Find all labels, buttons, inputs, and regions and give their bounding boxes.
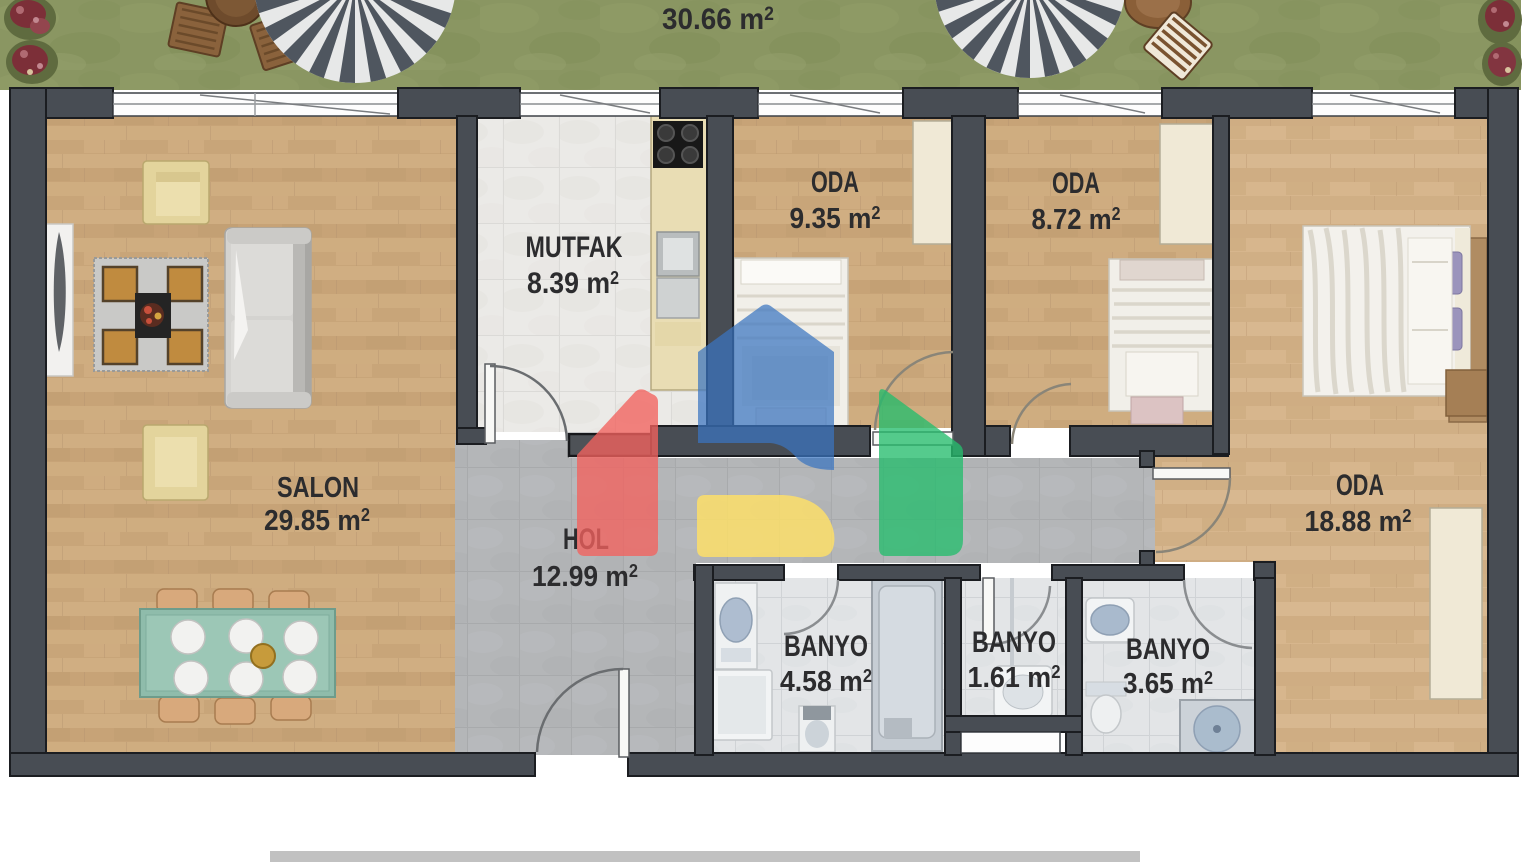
svg-text:BANYO: BANYO xyxy=(784,630,868,663)
svg-text:29.85 m2: 29.85 m2 xyxy=(264,505,370,537)
svg-text:MUTFAK: MUTFAK xyxy=(526,231,623,264)
svg-text:9.35 m2: 9.35 m2 xyxy=(790,203,881,235)
svg-text:3.65 m2: 3.65 m2 xyxy=(1123,668,1213,700)
svg-text:8.39 m2: 8.39 m2 xyxy=(527,267,619,300)
svg-text:4.58 m2: 4.58 m2 xyxy=(780,666,872,698)
svg-text:BANYO: BANYO xyxy=(972,626,1056,659)
svg-text:18.88 m2: 18.88 m2 xyxy=(1305,506,1412,538)
svg-text:ODA: ODA xyxy=(811,166,859,199)
svg-text:ODA: ODA xyxy=(1336,469,1384,502)
svg-text:SALON: SALON xyxy=(277,472,359,504)
svg-text:30.66 m2: 30.66 m2 xyxy=(662,3,774,36)
svg-text:1.61 m2: 1.61 m2 xyxy=(968,662,1061,694)
svg-text:ODA: ODA xyxy=(1052,167,1100,200)
svg-text:8.72 m2: 8.72 m2 xyxy=(1032,204,1121,236)
svg-text:12.99 m2: 12.99 m2 xyxy=(532,561,638,593)
svg-text:BANYO: BANYO xyxy=(1126,633,1210,666)
